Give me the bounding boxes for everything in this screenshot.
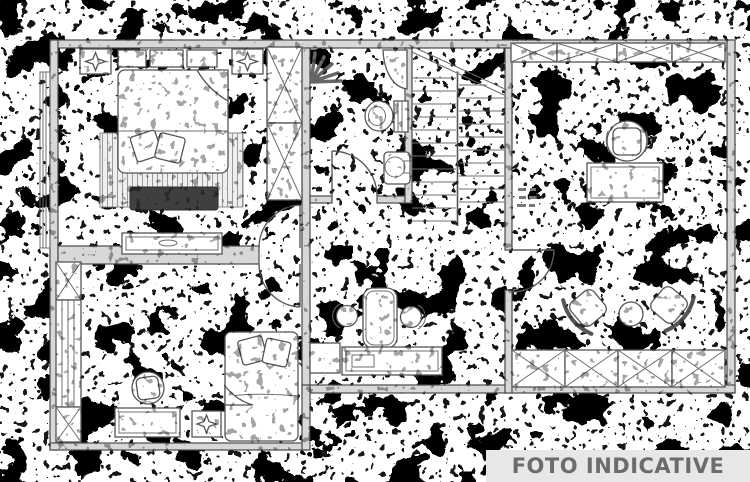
photo-indicative-banner: FOTO INDICATIVE bbox=[486, 450, 750, 482]
floor-plan-svg bbox=[0, 0, 750, 482]
banner-text: FOTO INDICATIVE bbox=[512, 454, 725, 478]
floor-plan-image: FOTO INDICATIVE bbox=[0, 0, 750, 482]
noise-overlay bbox=[0, 0, 750, 482]
